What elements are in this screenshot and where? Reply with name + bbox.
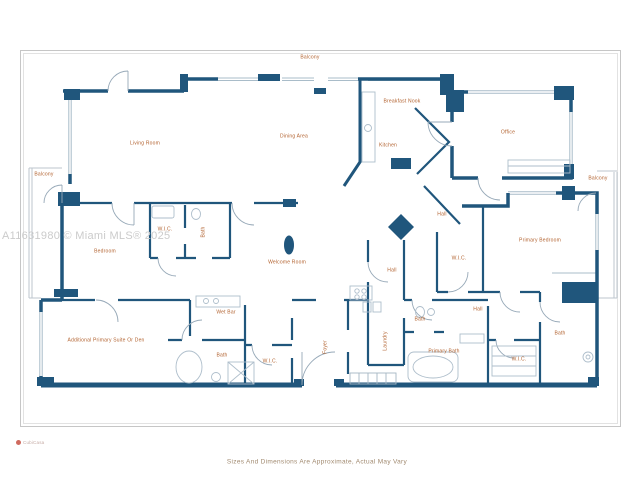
room-label-primary-bedroom: Primary Bedroom bbox=[519, 239, 561, 244]
room-label-hall-entry: Hall bbox=[473, 308, 482, 313]
right-bath-toilet bbox=[583, 352, 593, 362]
room-label-additional-primary-suite: Additional Primary Suite Or Den bbox=[67, 339, 144, 344]
room-label-office: Office bbox=[501, 131, 515, 136]
room-label-breakfast-nook: Breakfast Nook bbox=[384, 100, 421, 105]
disclaimer-text: Sizes And Dimensions Are Approximate, Ac… bbox=[227, 459, 407, 466]
left-bath-toilet bbox=[192, 209, 201, 220]
primary-bathtub bbox=[408, 352, 458, 382]
windows-layer bbox=[40, 78, 598, 376]
room-label-dining-area: Dining Area bbox=[280, 135, 308, 140]
room-label-bath-small: Bath bbox=[414, 318, 425, 323]
provider-logo: CubiCasa bbox=[16, 440, 44, 445]
room-label-foyer: Foyer bbox=[324, 340, 329, 354]
primary-bath-sink bbox=[460, 334, 484, 343]
room-label-wic-primary: W.I.C. bbox=[452, 257, 467, 262]
room-label-primary-bath: Primary Bath bbox=[428, 350, 459, 355]
room-label-wic-center: W.I.C. bbox=[263, 360, 278, 365]
dryer bbox=[373, 302, 381, 312]
room-label-bedroom: Bedroom bbox=[94, 250, 116, 255]
room-label-wet-bar: Wet Bar bbox=[216, 311, 235, 316]
office-counter bbox=[508, 160, 570, 173]
room-label-balcony-top: Balcony bbox=[300, 56, 319, 61]
room-label-hall-upper: Hall bbox=[437, 213, 446, 218]
left-bath-sink bbox=[152, 206, 174, 218]
room-label-bath-bedroom: Bath bbox=[202, 226, 207, 237]
room-label-kitchen: Kitchen bbox=[379, 144, 397, 149]
center-bathtub bbox=[176, 351, 202, 383]
room-label-wic-right: W.I.C. bbox=[512, 358, 527, 363]
room-label-balcony-right: Balcony bbox=[588, 177, 607, 182]
room-label-laundry: Laundry bbox=[384, 331, 389, 350]
room-label-living-room: Living Room bbox=[130, 142, 160, 147]
room-label-balcony-left: Balcony bbox=[34, 173, 53, 178]
mls-watermark: A11631980 © Miami MLS® 2025 bbox=[2, 230, 170, 242]
entry-steps bbox=[350, 373, 396, 384]
floor-plan-page: { "floor_plan": { "rooms": { "balcony_to… bbox=[0, 0, 640, 480]
provider-logo-text: CubiCasa bbox=[23, 440, 44, 445]
kitchen-counter bbox=[362, 92, 375, 162]
kitchen-sink bbox=[365, 125, 372, 132]
room-label-hall-lower: Hall bbox=[387, 269, 396, 274]
provider-logo-icon bbox=[16, 440, 21, 445]
room-label-welcome-room: Welcome Room bbox=[268, 261, 306, 266]
room-label-bath-center: Bath bbox=[216, 354, 227, 359]
room-label-bath-right: Bath bbox=[554, 332, 565, 337]
